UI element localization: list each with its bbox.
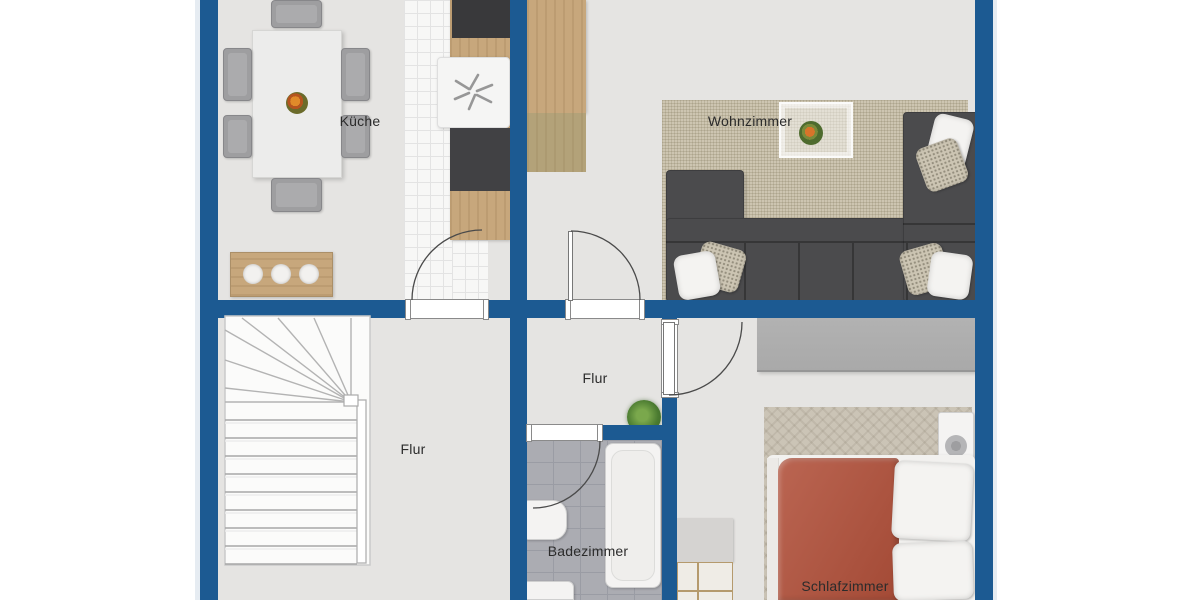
bed-pillow [891,460,974,542]
room-label-living: Wohnzimmer [708,113,792,129]
wardrobe [757,318,975,372]
bathroom-door-sill [527,424,602,441]
bedroom-shelf-lower [677,562,733,600]
room-label-bath: Badezimmer [548,543,629,559]
chair [341,48,370,101]
kitchen-tile-walkway [404,0,452,300]
chair [223,115,252,158]
sideboard-bowl [243,264,263,284]
living-side-table-lower [527,113,586,172]
wall-right [975,0,993,600]
sofa-seam [903,223,985,225]
kitchen-tile-door-area [452,240,488,300]
chair [223,48,252,101]
sofa-seam [798,243,800,300]
sofa-pillow [926,250,974,300]
bathroom-sink [522,581,574,600]
bathtub-inner [611,450,655,581]
hall-large-floor [218,318,510,600]
floor-plan: Küche Wohnzimmer Flur Flur Badezimmer Sc… [0,0,1200,600]
room-label-bedroom: Schlafzimmer [801,578,888,594]
sideboard-bowl [299,264,319,284]
stove [437,57,510,128]
sofa-pillow [672,250,721,302]
sideboard-bowl [271,264,291,284]
toilet [523,500,567,540]
bedroom-shelf-divider [677,590,733,592]
room-label-kitchen: Küche [340,113,381,129]
kitchen-door-sill [406,299,488,319]
bedroom-shelf-divider [697,562,699,600]
hall-living-door-sill [566,299,644,319]
plan-edge [993,0,997,600]
room-label-hall-large: Flur [401,441,426,457]
sofa-seam [852,243,854,300]
wall-left [200,0,218,600]
wall-mid-horizontal [644,300,975,318]
sofa-seam [744,243,746,300]
bedroom-door-leaf [663,322,675,395]
hall-living-door-leaf [568,231,573,301]
kitchen-appliance-top [452,0,510,38]
room-label-hall-small: Flur [583,370,608,386]
chair [271,0,322,28]
wall-mid-horizontal [218,300,406,318]
living-side-table [527,0,586,113]
fruit-bowl [286,92,308,114]
coffee-table-plant [799,121,823,145]
wall-mid-horizontal [488,300,566,318]
oven [450,128,510,191]
bedroom-shelf [677,518,733,562]
nightstand-lamp [945,435,967,457]
bed-pillow [892,541,974,600]
chair [271,178,322,212]
